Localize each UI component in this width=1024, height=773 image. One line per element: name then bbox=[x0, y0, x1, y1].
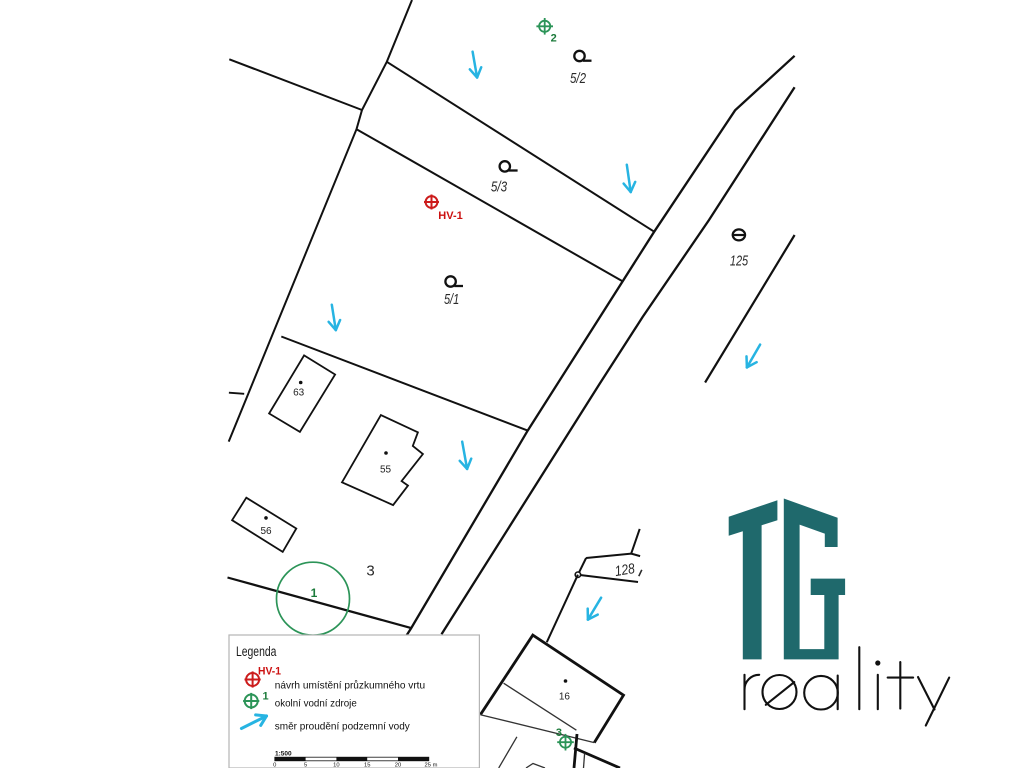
svg-text:Legenda: Legenda bbox=[236, 644, 277, 659]
svg-text:3: 3 bbox=[366, 563, 374, 580]
svg-text:125: 125 bbox=[730, 253, 749, 270]
svg-text:1: 1 bbox=[311, 586, 318, 600]
svg-text:10: 10 bbox=[333, 763, 339, 769]
svg-text:20: 20 bbox=[395, 763, 401, 769]
svg-text:směr proudění podzemní vody: směr proudění podzemní vody bbox=[275, 722, 411, 733]
svg-text:1: 1 bbox=[263, 691, 269, 703]
svg-text:5/1: 5/1 bbox=[444, 291, 459, 308]
svg-text:návrh umístění průzkumného vrt: návrh umístění průzkumného vrtu bbox=[275, 679, 426, 691]
svg-text:15: 15 bbox=[364, 763, 370, 769]
svg-text:1:500: 1:500 bbox=[275, 751, 292, 758]
svg-text:5/2: 5/2 bbox=[570, 70, 586, 87]
svg-text:HV-1: HV-1 bbox=[258, 666, 281, 678]
svg-text:okolní vodní zdroje: okolní vodní zdroje bbox=[275, 699, 357, 710]
svg-text:56: 56 bbox=[260, 526, 272, 537]
svg-text:0: 0 bbox=[273, 763, 276, 769]
svg-text:2: 2 bbox=[551, 32, 557, 44]
svg-text:16: 16 bbox=[559, 692, 571, 703]
svg-text:63: 63 bbox=[293, 388, 305, 399]
svg-text:55: 55 bbox=[380, 465, 392, 476]
svg-text:5: 5 bbox=[304, 763, 307, 769]
svg-text:25 m: 25 m bbox=[425, 763, 438, 769]
svg-text:128: 128 bbox=[614, 561, 636, 580]
svg-text:5/3: 5/3 bbox=[491, 179, 508, 196]
svg-text:HV-1: HV-1 bbox=[438, 210, 463, 222]
svg-text:3: 3 bbox=[556, 727, 562, 739]
